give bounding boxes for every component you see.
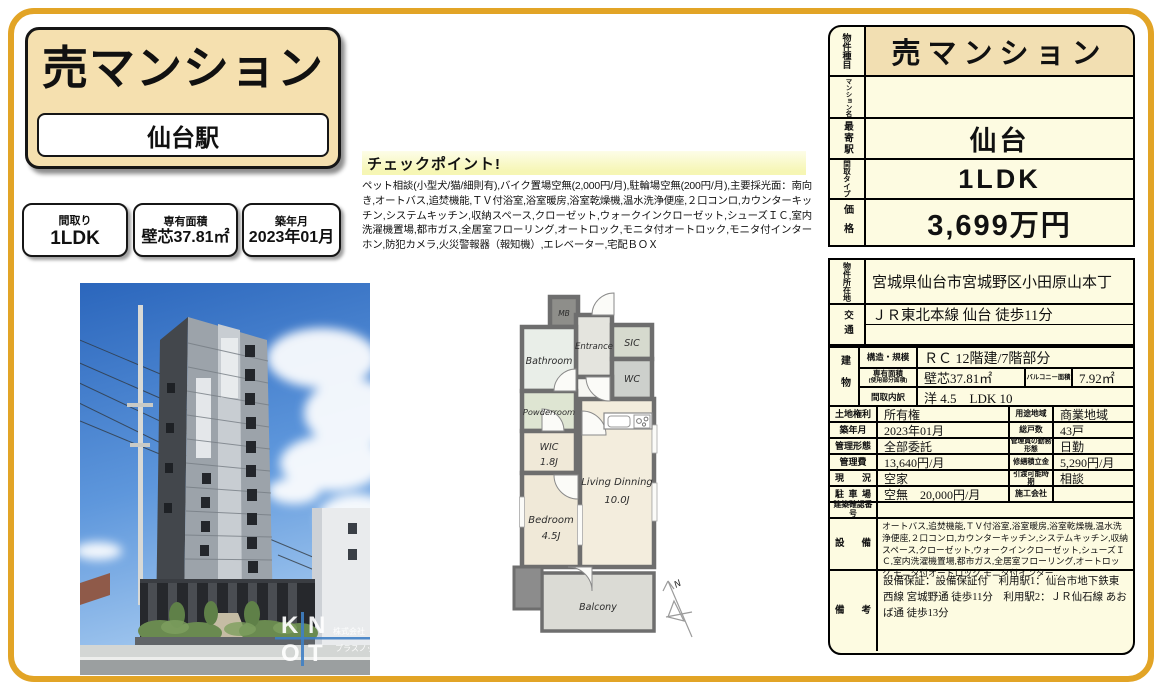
row-label: 備考 <box>830 606 876 617</box>
room-label-wc: WC <box>624 374 640 385</box>
building-photo-illustration: K N O T 株式会社 プラスノット <box>80 283 370 675</box>
row-label: 土地権利 <box>830 407 878 421</box>
row-label: 管理費 <box>830 455 878 469</box>
summary-label: 間取り <box>59 212 92 228</box>
balcony-area-value: 7.92㎡ <box>1073 369 1133 386</box>
north-arrow: N <box>663 579 692 637</box>
spec-table-middle: 物件所在地 宮城県仙台市宮城野区小田原山本丁 交通 ＪＲ東北本線 仙台 徒歩11… <box>828 258 1135 346</box>
spec-table-bottom: 建物 構造・規模 ＲＣ 12階建/7階部分 専有面積 (使用部分面積) 壁芯37… <box>828 346 1135 655</box>
summary-value: 2023年01月 <box>249 230 334 247</box>
summary-box-built: 築年月 2023年01月 <box>242 203 341 257</box>
row-label: 管理形態 <box>830 439 878 453</box>
row-label: 総戸数 <box>1010 423 1054 437</box>
row-label: 間取内訳 <box>860 388 918 407</box>
row-label: 修繕積立金 <box>1010 455 1054 469</box>
row-label: 設備 <box>830 539 876 550</box>
row-label: 用途地域 <box>1010 407 1054 421</box>
row-label: バルコニー面積 <box>1026 369 1073 386</box>
room-label-entrance: Entrance <box>575 342 613 352</box>
remarks-value: 設備保証：設備保証付 利用駅1：仙台市地下鉄東西線 宮城野通 徒歩11分 利用駅… <box>878 571 1133 651</box>
cell-value: 全部委託 <box>878 439 1010 453</box>
cell-value: 相談 <box>1054 471 1133 485</box>
station-box: 仙台駅 <box>37 113 329 157</box>
table-row: 備考 設備保証：設備保証付 利用駅1：仙台市地下鉄東西線 宮城野通 徒歩11分 … <box>830 571 1133 651</box>
row-label: 建物 <box>830 348 860 405</box>
summary-value: 1LDK <box>50 229 100 249</box>
knot-letter-k: K <box>281 612 299 639</box>
cell-value: 日勤 <box>1054 439 1133 453</box>
summary-box-layout: 間取り 1LDK <box>22 203 128 257</box>
summary-box-area: 専有面積 壁芯37.81㎡ <box>133 203 238 257</box>
summary-label: 築年月 <box>275 213 308 229</box>
property-type-value: 売マンション <box>866 27 1133 75</box>
cell-value: 2023年01月 <box>878 423 1010 437</box>
table-row: 土地権利 所有権 用途地域 商業地域 <box>830 407 1133 423</box>
access-value-1: ＪＲ東北本線 仙台 徒歩11分 <box>866 305 1133 325</box>
room-label-bedroom: Bedroom <box>528 515 574 526</box>
row-label: 築年月 <box>830 423 878 437</box>
row-label: 物件所在地 <box>830 260 866 303</box>
address-value: 宮城県仙台市宮城野区小田原山本丁 <box>866 260 1133 303</box>
knot-letter-o: O <box>281 640 300 667</box>
building-group: 建物 構造・規模 ＲＣ 12階建/7階部分 専有面積 (使用部分面積) 壁芯37… <box>830 348 1133 407</box>
floor-plan: MB Bathroom Entrance SIC WC Powderroom W… <box>480 285 720 675</box>
table-row: 交通 ＪＲ東北本線 仙台 徒歩11分 <box>830 305 1133 344</box>
cell-value: 空家 <box>878 471 1010 485</box>
table-row: マンション名 <box>830 77 1133 119</box>
table-row: 築年月 2023年01月 総戸数 43戸 <box>830 423 1133 439</box>
summary-value: 壁芯37.81㎡ <box>141 230 229 247</box>
table-row: 専有面積 (使用部分面積) 壁芯37.81㎡ バルコニー面積 7.92㎡ <box>860 369 1133 388</box>
row-label: 価格 <box>830 200 866 245</box>
table-row: 建築確認番号 <box>830 503 1133 519</box>
flyer-page: 売マンション 仙台駅 間取り 1LDK 専有面積 壁芯37.81㎡ 築年月 20… <box>0 0 1162 691</box>
room-label-wic: WIC <box>540 442 559 453</box>
room-label-powderroom: Powderroom <box>523 407 575 417</box>
row-label: 最寄駅 <box>830 119 866 158</box>
room-size-wic: 1.8J <box>540 457 558 468</box>
table-row: 現況 空家 引渡可能時期 相談 <box>830 471 1133 487</box>
row-label: 引渡可能時期 <box>1010 471 1054 485</box>
row-label: 現況 <box>830 473 876 483</box>
cell-value: 5,290円/月 <box>1054 455 1133 469</box>
summary-label: 専有面積 <box>164 213 208 229</box>
building-photo: K N O T 株式会社 プラスノット <box>80 283 370 675</box>
cell-value <box>878 503 1133 517</box>
table-row: 物件所在地 宮城県仙台市宮城野区小田原山本丁 <box>830 260 1133 305</box>
row-label: 管理員の勤務形態 <box>1010 439 1054 453</box>
title-card: 売マンション 仙台駅 <box>25 27 341 169</box>
table-row: 物件種目 売マンション <box>830 27 1133 77</box>
cell-value: 商業地域 <box>1054 407 1133 421</box>
table-row: 構造・規模 ＲＣ 12階建/7階部分 <box>860 348 1133 369</box>
layout-type-value: 1LDK <box>866 160 1133 198</box>
room-label-living: Living Dinning <box>581 477 653 488</box>
access-value-2 <box>866 325 1133 344</box>
kitchen <box>604 413 652 429</box>
room-label-mb: MB <box>558 309 570 318</box>
building-tower <box>156 317 273 625</box>
checkpoint-body: ペット相談(小型犬/猫/細則有),バイク置場空無(2,000円/月),駐輪場空無… <box>362 180 812 254</box>
station-value: 仙台 <box>866 119 1133 158</box>
table-row: 最寄駅 仙台 <box>830 119 1133 160</box>
north-label: N <box>673 579 684 591</box>
cell-value: 所有権 <box>878 407 1010 421</box>
cell-value: 43戸 <box>1054 423 1133 437</box>
floor-plan-drawing: MB Bathroom Entrance SIC WC Powderroom W… <box>480 285 720 675</box>
row-label: 間取タイプ <box>830 160 866 198</box>
area-value: 壁芯37.81㎡ <box>918 369 1026 386</box>
room-label-bathroom: Bathroom <box>526 356 573 367</box>
row-label: マンション名 <box>830 77 866 117</box>
table-row: 設備 オートバス,追焚機能,ＴＶ付浴室,浴室暖房,浴室乾燥機,温水洗浄便座,２口… <box>830 519 1133 571</box>
knot-company-line2: プラスノット <box>335 644 370 653</box>
property-type-title: 売マンション <box>28 32 338 98</box>
room-label-sic: SIC <box>624 338 640 349</box>
knot-letter-t: T <box>308 640 323 667</box>
row-label: 施工会社 <box>1010 487 1054 501</box>
row-label: 駐車場 <box>830 489 876 499</box>
spec-table-top: 物件種目 売マンション マンション名 最寄駅 仙台 間取タイプ 1LDK 価格 … <box>828 25 1135 247</box>
layout-detail-value: 洋 4.5 LDK 10 <box>918 388 1133 407</box>
mansion-name-value <box>866 77 1133 117</box>
table-row: 管理費 13,640円/月 修繕積立金 5,290円/月 <box>830 455 1133 471</box>
cell-value <box>1054 487 1133 501</box>
row-label: 構造・規模 <box>860 348 918 367</box>
room-size-living: 10.0J <box>604 495 629 506</box>
equipment-value: オートバス,追焚機能,ＴＶ付浴室,浴室暖房,浴室乾燥機,温水洗浄便座,２口コンロ… <box>878 519 1133 569</box>
knot-letter-n: N <box>308 612 325 639</box>
price-value: 3,699万円 <box>866 200 1133 245</box>
cell-value: 空無 20,000円/月 <box>878 487 1010 501</box>
table-row: 間取内訳 洋 4.5 LDK 10 <box>860 388 1133 407</box>
row-label: 建築確認番号 <box>830 503 878 517</box>
room-label-balcony: Balcony <box>579 602 617 613</box>
table-row: 間取タイプ 1LDK <box>830 160 1133 200</box>
structure-value: ＲＣ 12階建/7階部分 <box>918 348 1133 367</box>
row-label: 交通 <box>830 305 866 344</box>
checkpoint-title: チェックポイント! <box>362 151 806 175</box>
table-row: 価格 3,699万円 <box>830 200 1133 245</box>
cell-value: 13,640円/月 <box>878 455 1010 469</box>
row-label: 物件種目 <box>830 27 866 75</box>
row-sublabel: (使用部分面積) <box>869 378 908 385</box>
room-size-bedroom: 4.5J <box>542 531 561 542</box>
knot-company-line1: 株式会社 <box>333 626 365 636</box>
